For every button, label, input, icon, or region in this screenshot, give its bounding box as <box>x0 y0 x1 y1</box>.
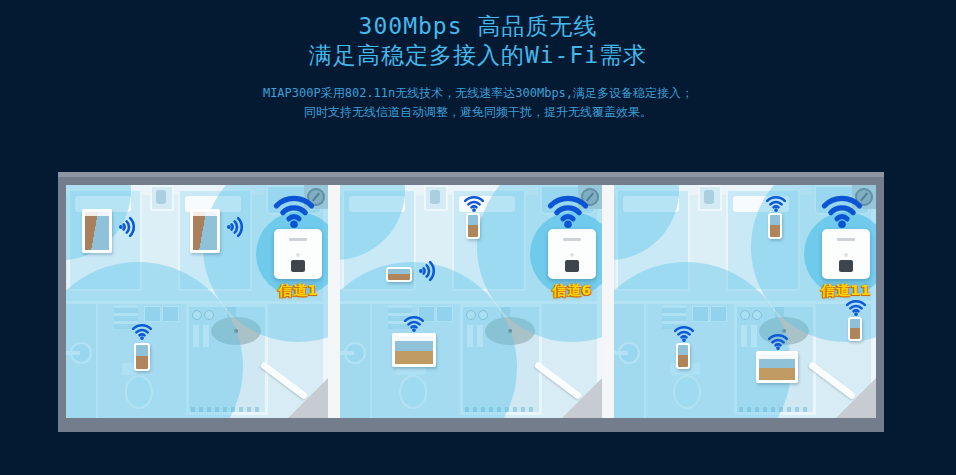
tablet-landscape-device <box>756 351 798 383</box>
wifi-signal-icon <box>116 217 140 237</box>
bathtub-area <box>614 304 646 418</box>
wifi-signal-icon <box>672 323 696 343</box>
section-description: MIAP300P采用802.11n无线技术，无线速率达300Mbps,满足多设备… <box>0 84 956 122</box>
pillow <box>349 196 405 212</box>
channel-label: 信道6 <box>536 282 602 300</box>
wifi-signal-icon <box>130 321 154 341</box>
phone-portrait-device <box>848 317 862 341</box>
channel-label: 信道1 <box>262 282 328 300</box>
bathroom-sink-unit <box>186 304 268 415</box>
towel-rack <box>741 325 761 347</box>
tablet-portrait-device <box>190 209 220 253</box>
sink <box>211 317 261 345</box>
ap-led <box>296 253 300 257</box>
toilet <box>396 363 426 409</box>
wifi-signal-icon <box>416 261 440 281</box>
phone-portrait-device <box>134 343 150 371</box>
hotel-room-floorplan: 信道1 <box>66 185 328 418</box>
wifi-signal-icon <box>462 193 486 213</box>
rooms-row: 信道1 <box>66 185 876 418</box>
towel-rack <box>193 325 213 347</box>
bathtub-area <box>66 304 98 418</box>
wifi-coverage-illustration: 信道1 <box>58 172 884 432</box>
wall-mount-access-point <box>274 229 322 279</box>
ap-ethernet-port <box>291 260 305 272</box>
ap-ethernet-port <box>839 260 853 272</box>
bathroom-sink-unit <box>460 304 542 415</box>
section-title: 300Mbps 高品质无线 <box>0 12 956 41</box>
cushions <box>692 306 728 320</box>
tablet-portrait-device <box>82 209 112 253</box>
hotel-room-floorplan: 信道11 <box>614 185 876 418</box>
description-line-1: MIAP300P采用802.11n无线技术，无线速率达300Mbps,满足多设备… <box>263 86 693 100</box>
phone-portrait-device <box>466 213 480 239</box>
bathtub-pipe <box>340 351 354 355</box>
faucet-icon <box>204 310 214 320</box>
wall-phone-fixture <box>150 185 174 211</box>
sink <box>485 317 535 345</box>
wifi-signal-icon <box>402 313 426 333</box>
ap-ethernet-port <box>565 260 579 272</box>
phone-portrait-device <box>676 343 690 369</box>
wifi-signal-icon <box>766 331 790 351</box>
bathtub-pipe <box>66 351 80 355</box>
bed <box>726 189 800 291</box>
wall-phone-fixture <box>424 185 448 211</box>
channel-label: 信道11 <box>810 282 876 300</box>
tablet-landscape-device <box>392 333 436 367</box>
wifi-signal-icon <box>844 297 868 317</box>
ap-led <box>844 253 848 257</box>
wall-mount-access-point <box>548 229 596 279</box>
cushions <box>144 306 180 320</box>
pillow <box>623 196 679 212</box>
description-line-2: 同时支持无线信道自动调整，避免同频干扰，提升无线覆盖效果。 <box>304 105 652 119</box>
toilet <box>670 363 700 409</box>
faucet-icon <box>740 310 750 320</box>
towel-rack <box>467 325 487 347</box>
wall-phone-fixture <box>698 185 722 211</box>
section-subtitle: 满足高稳定多接入的Wi-Fi需求 <box>0 41 956 70</box>
phone-portrait-device <box>768 213 782 239</box>
section-header: 300Mbps 高品质无线 满足高稳定多接入的Wi-Fi需求 MIAP300P采… <box>0 12 956 122</box>
wifi-signal-icon <box>764 193 788 213</box>
faucet-icon <box>466 310 476 320</box>
bathtub-area <box>340 304 372 418</box>
faucet-icon <box>192 310 202 320</box>
wall-mount-access-point <box>822 229 870 279</box>
ap-led <box>570 253 574 257</box>
bathtub-pipe <box>614 351 628 355</box>
phone-landscape-device <box>386 267 412 282</box>
faucet-icon <box>478 310 488 320</box>
wifi-signal-icon <box>542 191 594 229</box>
wifi-signal-icon <box>224 217 248 237</box>
bed <box>616 189 690 291</box>
hotel-room-floorplan: 信道6 <box>340 185 602 418</box>
wifi-signal-icon <box>816 191 868 229</box>
wifi-signal-icon <box>268 191 320 229</box>
faucet-icon <box>752 310 762 320</box>
